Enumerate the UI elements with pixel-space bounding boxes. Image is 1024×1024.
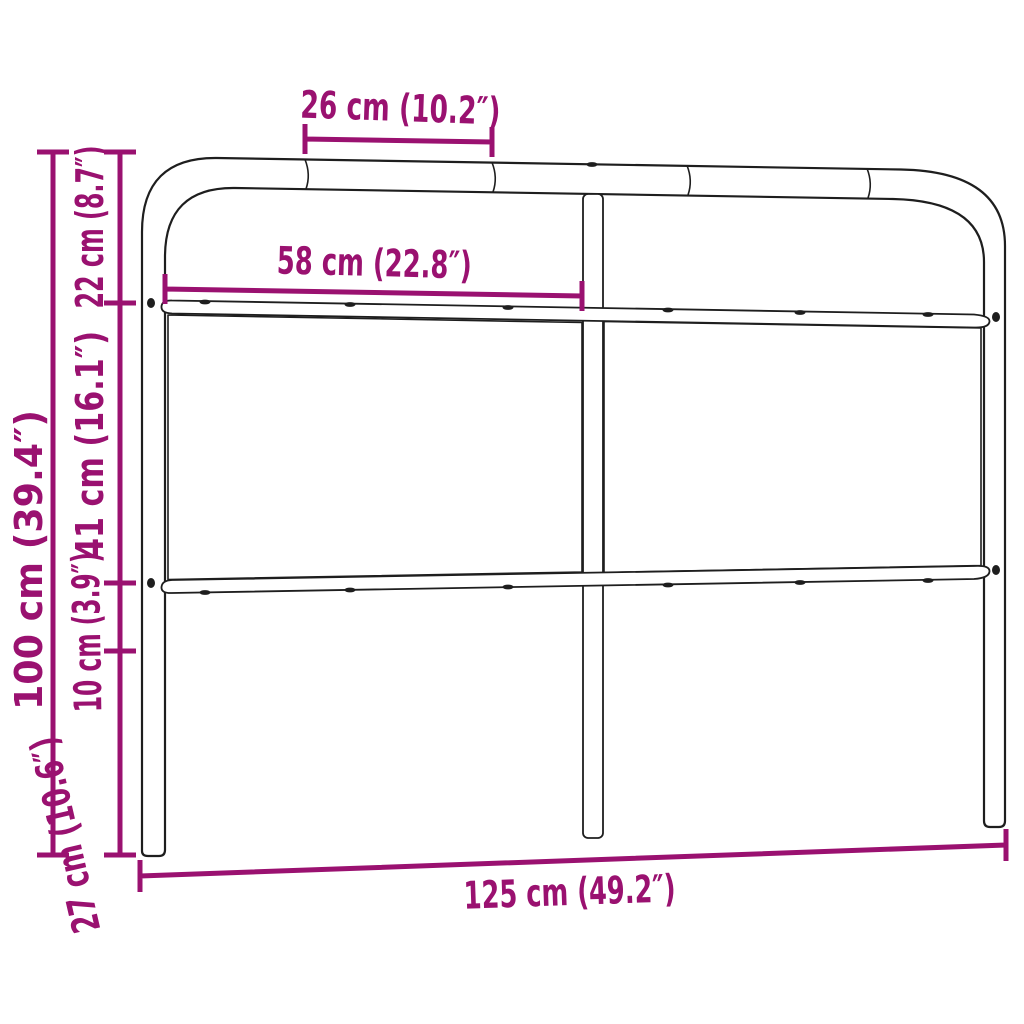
dimension-label: 22 cm (8.7″): [68, 146, 112, 309]
screw-dot: [147, 298, 155, 308]
screw-dot: [503, 305, 514, 310]
screw-dot: [147, 578, 155, 588]
dimension-label: 41 cm (16.1″): [68, 331, 112, 559]
headboard-frame: [142, 158, 1005, 856]
dimension-label: 27 cm (10.6″): [21, 733, 109, 938]
screw-dot: [345, 302, 356, 307]
screw-dot: [992, 312, 1000, 322]
screw-dot: [663, 583, 674, 588]
dimension-inner-width: 58 cm (22.8″): [165, 238, 582, 311]
screw-dot: [200, 590, 211, 595]
screw-dots: [147, 162, 1000, 595]
screw-dot: [795, 580, 806, 585]
left-panel: [168, 315, 582, 580]
middle-rail: [161, 566, 989, 593]
screw-dot: [923, 312, 934, 317]
screw-dot: [345, 588, 356, 593]
screw-dot: [503, 585, 514, 590]
dimension-label: 26 cm (10.2″): [300, 83, 501, 134]
right-panel: [604, 322, 981, 573]
dimension-label: 125 cm (49.2″): [463, 866, 676, 917]
center-leg: [583, 194, 603, 838]
dimension-label: 10 cm (3.9″): [64, 552, 111, 713]
dimension-label: 58 cm (22.8″): [276, 238, 472, 287]
screw-dot: [663, 308, 674, 313]
frame-outline: [142, 158, 1005, 856]
dimension-top-segment: 26 cm (10.2″): [300, 83, 501, 157]
dimension-label: 100 cm (39.4″): [7, 410, 51, 710]
screw-dot: [200, 300, 211, 305]
screw-dot: [587, 162, 598, 167]
screw-dot: [795, 310, 806, 315]
screw-dot: [992, 565, 1000, 575]
dimension-diagram: 26 cm (10.2″) 58 cm (22.8″) 22 cm (8.7″)…: [0, 0, 1024, 1024]
upper-rail: [161, 300, 989, 327]
headboard-dimension-drawing: 26 cm (10.2″) 58 cm (22.8″) 22 cm (8.7″)…: [0, 0, 1024, 1024]
screw-dot: [923, 578, 934, 583]
dimension-total-width: 125 cm (49.2″): [140, 829, 1006, 918]
